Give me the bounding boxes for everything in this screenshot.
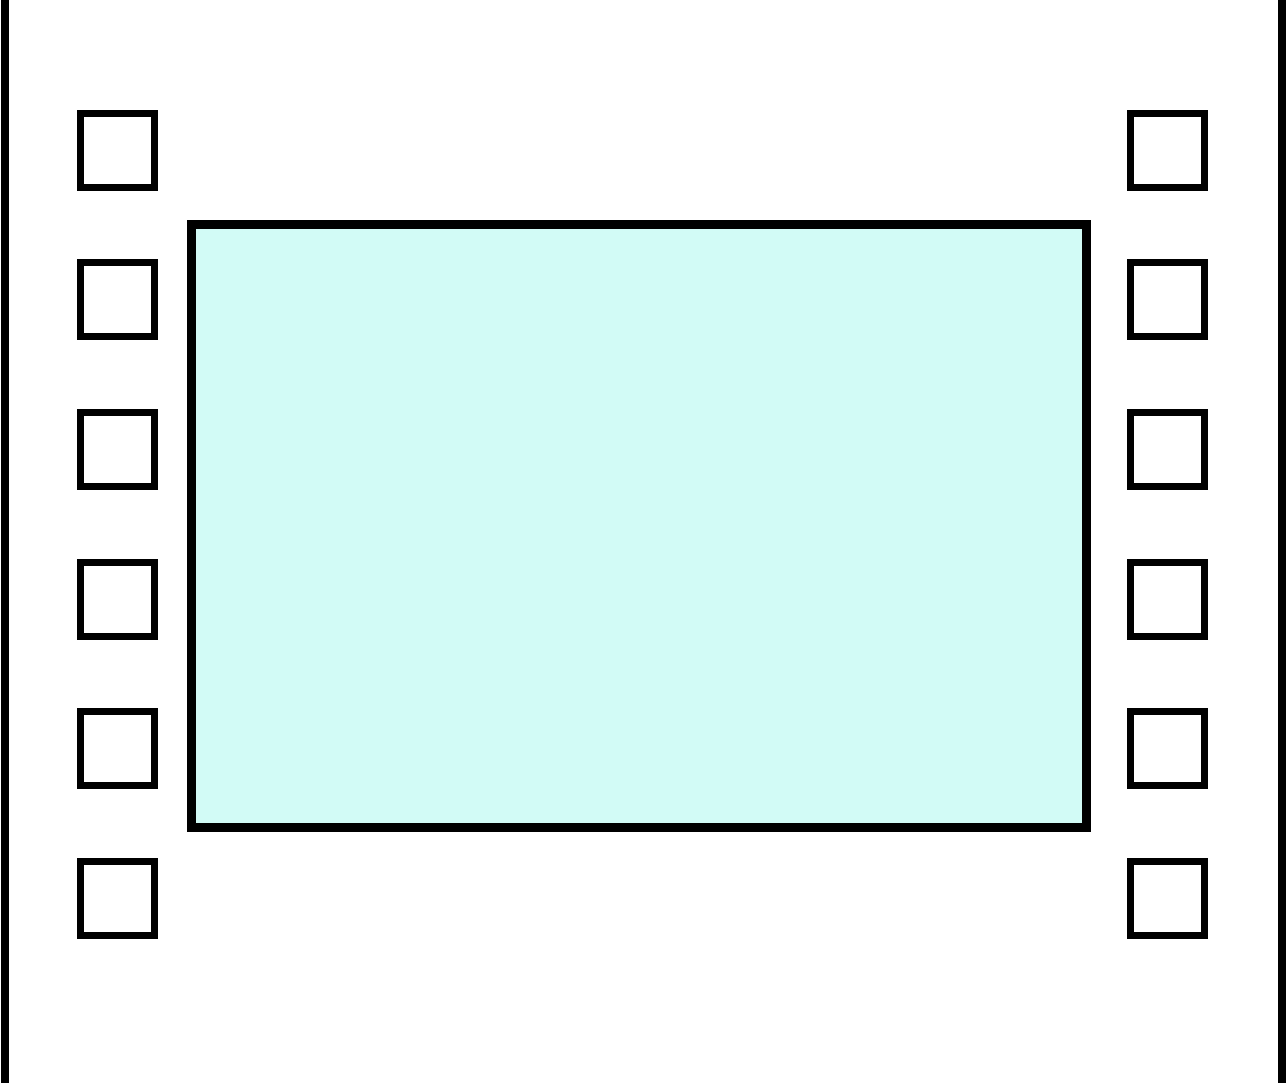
sprocket-hole [1127,559,1208,640]
sprocket-hole [1127,409,1208,490]
sprocket-hole [1127,858,1208,939]
film-frame [187,220,1091,832]
sprocket-hole [77,708,158,789]
sprocket-hole [77,110,158,191]
sprocket-hole [1127,110,1208,191]
sprocket-hole [77,858,158,939]
sprocket-hole [77,259,158,340]
sprocket-hole [1127,708,1208,789]
film-left-edge-line [1,0,9,1083]
film-strip-graphic [0,0,1286,1083]
film-right-edge-line [1278,0,1286,1083]
sprocket-hole [1127,259,1208,340]
sprocket-hole [77,409,158,490]
sprocket-hole [77,559,158,640]
